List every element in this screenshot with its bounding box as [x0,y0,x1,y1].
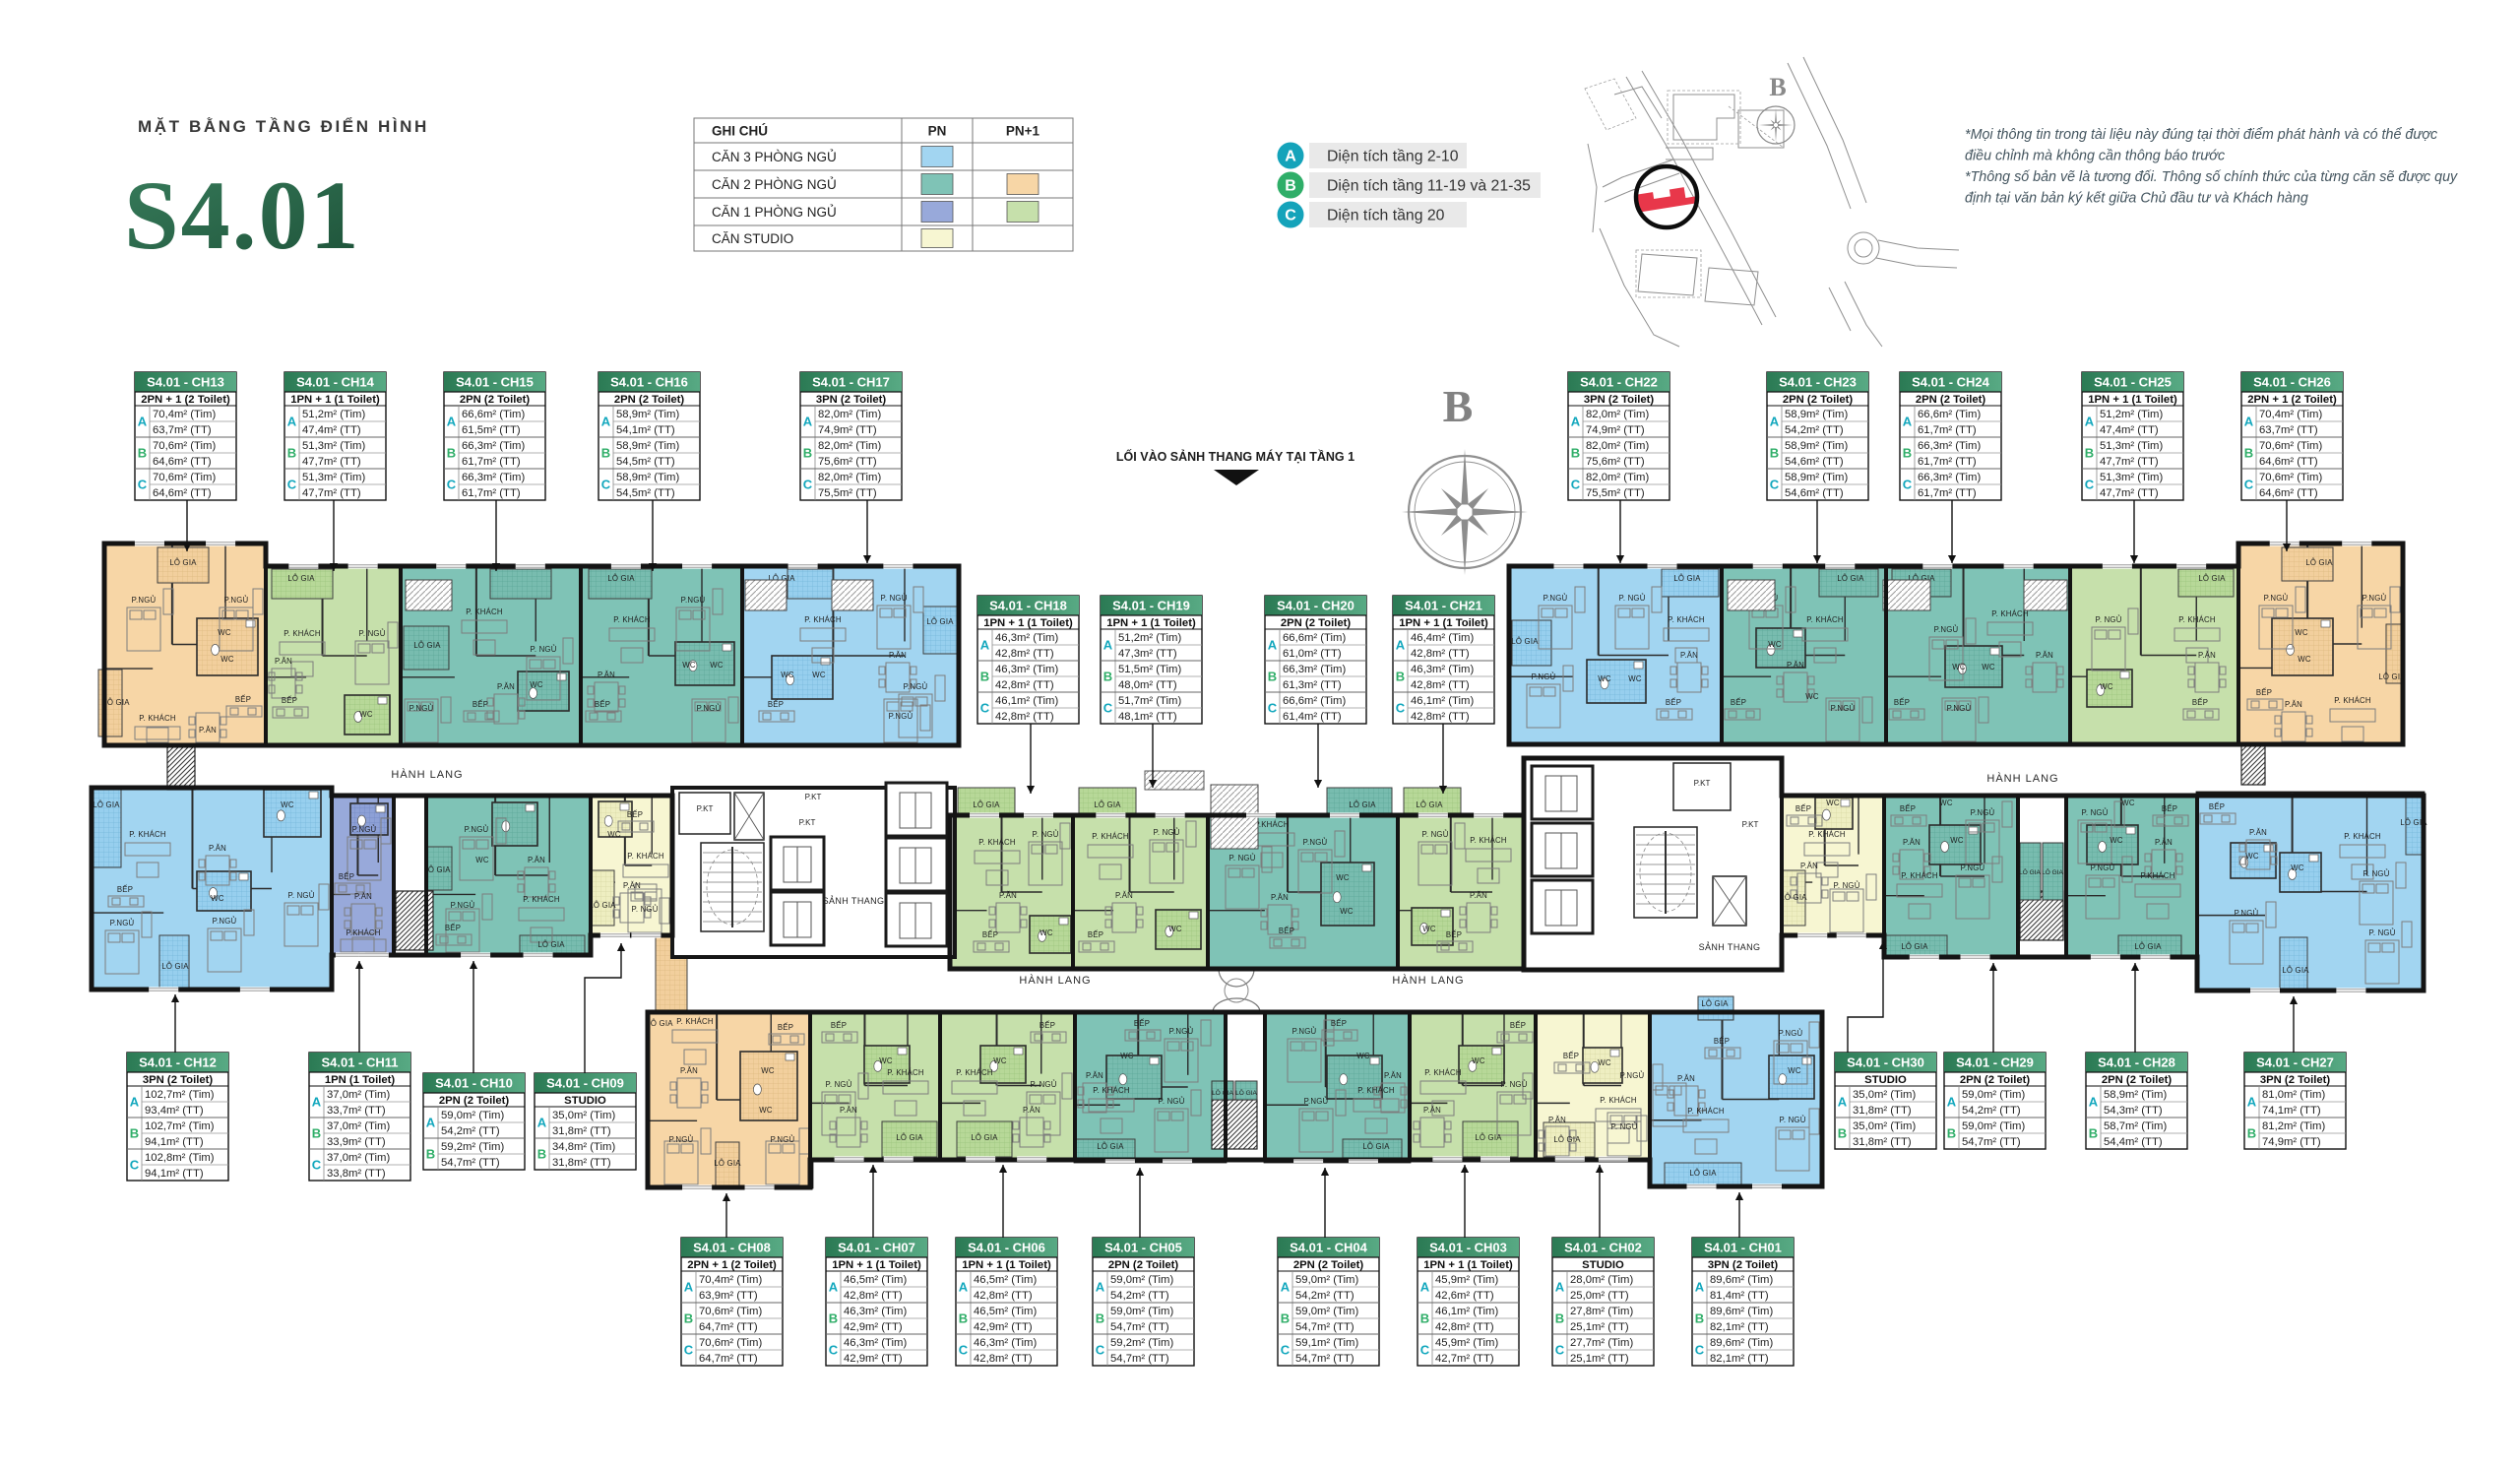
svg-text:A: A [959,1280,969,1295]
svg-text:70,6m² (Tim): 70,6m² (Tim) [2259,472,2322,483]
svg-text:WC: WC [781,671,794,679]
svg-text:BẾP: BẾP [1900,803,1916,813]
svg-text:WC: WC [218,628,231,637]
svg-text:47,7m² (TT): 47,7m² (TT) [302,487,361,499]
svg-text:P.ĂN: P.ĂN [1115,891,1133,900]
svg-text:42,8m² (TT): 42,8m² (TT) [974,1290,1033,1302]
svg-text:P.NGỦ: P.NGỦ [697,704,722,713]
svg-text:81,2m² (Tim): 81,2m² (Tim) [2262,1120,2325,1132]
svg-text:66,6m² (Tim): 66,6m² (Tim) [462,409,525,420]
svg-text:WC: WC [1336,873,1350,882]
svg-text:WC: WC [1168,925,1182,933]
svg-text:WC: WC [1039,928,1053,937]
svg-text:P. NGỦ: P. NGỦ [530,645,556,654]
svg-text:GHI CHÚ: GHI CHÚ [712,124,768,139]
svg-text:C: C [1103,701,1113,716]
svg-text:47,4m² (TT): 47,4m² (TT) [2100,424,2159,436]
svg-text:WC: WC [475,856,489,864]
svg-text:A: A [1770,415,1780,429]
svg-text:54,7m² (TT): 54,7m² (TT) [1110,1353,1169,1365]
svg-text:WC: WC [993,1056,1007,1065]
svg-text:*Mọi thông tin trong tài liệu: *Mọi thông tin trong tài liệu này đúng t… [1965,127,2437,143]
svg-text:31,8m² (TT): 31,8m² (TT) [1853,1136,1912,1148]
svg-text:B: B [426,1147,435,1162]
svg-text:46,3m² (Tim): 46,3m² (Tim) [844,1306,907,1317]
svg-text:C: C [1571,478,1581,492]
svg-text:B: B [2089,1126,2098,1141]
svg-text:C: C [959,1343,969,1358]
svg-text:2PN (2 Toilet): 2PN (2 Toilet) [460,394,531,406]
svg-text:P.ĂN: P.ĂN [1677,1074,1695,1083]
svg-text:WC: WC [1598,674,1611,683]
svg-text:42,8m² (TT): 42,8m² (TT) [974,1353,1033,1365]
svg-text:C: C [1770,478,1780,492]
svg-text:59,0m² (Tim): 59,0m² (Tim) [441,1110,504,1121]
svg-text:S4.01 - CH24: S4.01 - CH24 [1912,375,1990,390]
svg-text:70,4m² (Tim): 70,4m² (Tim) [153,409,216,420]
svg-text:P.ĂN: P.ĂN [2036,651,2053,660]
svg-text:63,7m² (TT): 63,7m² (TT) [153,424,212,436]
svg-text:70,6m² (Tim): 70,6m² (Tim) [153,440,216,452]
svg-text:51,3m² (Tim): 51,3m² (Tim) [2100,472,2163,483]
svg-text:42,8m² (TT): 42,8m² (TT) [995,711,1054,723]
svg-text:46,3m² (Tim): 46,3m² (Tim) [974,1337,1037,1349]
svg-text:P. KHÁCH: P. KHÁCH [804,615,841,624]
svg-text:P.NGỦ: P.NGỦ [1961,863,1985,872]
svg-text:B: B [1695,1311,1704,1326]
svg-text:P.ĂN: P.ĂN [209,844,226,853]
svg-text:A: A [980,638,990,653]
svg-text:P. KHÁCH: P. KHÁCH [283,629,320,638]
svg-text:2PN (2 Toilet): 2PN (2 Toilet) [1293,1259,1364,1271]
svg-text:LÔ GIA: LÔ GIA [896,1133,923,1142]
svg-text:C: C [829,1343,839,1358]
svg-text:59,0m² (Tim): 59,0m² (Tim) [1962,1089,2025,1101]
svg-text:C: C [1268,701,1278,716]
svg-text:WC: WC [1939,799,1953,807]
svg-text:A: A [829,1280,839,1295]
svg-text:2PN (2 Toilet): 2PN (2 Toilet) [1281,617,1352,629]
svg-text:BẾP: BẾP [339,871,354,881]
svg-text:2PN (2 Toilet): 2PN (2 Toilet) [1783,394,1854,406]
svg-text:B: B [312,1126,321,1141]
svg-text:BẾP: BẾP [1088,929,1103,939]
svg-text:P.KT: P.KT [1742,820,1759,829]
svg-text:C: C [980,701,990,716]
svg-text:LÔ GIA: LÔ GIA [2282,966,2309,975]
svg-text:54,7m² (TT): 54,7m² (TT) [441,1157,500,1169]
svg-text:P.NGỦ: P.NGỦ [669,1135,694,1144]
svg-text:A: A [1285,149,1296,165]
svg-text:28,0m² (Tim): 28,0m² (Tim) [1570,1274,1633,1286]
svg-text:STUDIO: STUDIO [564,1095,606,1107]
svg-text:P.NGỦ: P.NGỦ [1292,1027,1317,1036]
svg-text:70,6m² (Tim): 70,6m² (Tim) [153,472,216,483]
svg-text:P. KHÁCH: P. KHÁCH [129,830,165,839]
svg-text:P. KHÁCH: P. KHÁCH [676,1017,713,1026]
svg-text:54,2m² (TT): 54,2m² (TT) [1785,424,1844,436]
svg-text:định tại văn bản ký kết giữa C: định tại văn bản ký kết giữa Chủ đầu tư … [1965,191,2308,207]
svg-text:59,0m² (Tim): 59,0m² (Tim) [1110,1274,1173,1286]
svg-text:B: B [1268,670,1277,684]
svg-text:P.NGỦ: P.NGỦ [2264,594,2289,603]
svg-text:37,0m² (Tim): 37,0m² (Tim) [327,1152,390,1164]
svg-text:70,6m² (Tim): 70,6m² (Tim) [2259,440,2322,452]
svg-text:S4.01 - CH22: S4.01 - CH22 [1580,375,1658,390]
svg-text:61,3m² (TT): 61,3m² (TT) [1283,679,1342,691]
svg-text:LÔ GIA: LÔ GIA [1553,1135,1581,1144]
svg-text:25,1m² (TT): 25,1m² (TT) [1570,1353,1629,1365]
svg-text:LÔ GIA: LÔ GIA [93,800,120,809]
svg-text:S4.01 - CH30: S4.01 - CH30 [1847,1055,1924,1070]
svg-text:B: B [803,446,812,461]
svg-text:C: C [1420,1343,1430,1358]
svg-text:P.NGỦ: P.NGỦ [2091,863,2115,872]
svg-text:58,9m² (Tim): 58,9m² (Tim) [2104,1089,2167,1101]
svg-text:54,4m² (TT): 54,4m² (TT) [2104,1136,2163,1148]
svg-text:WC: WC [1950,836,1964,845]
svg-text:C: C [1903,478,1913,492]
svg-text:WC: WC [1598,1058,1611,1067]
svg-text:S4.01 - CH16: S4.01 - CH16 [610,375,688,390]
svg-text:SẢNH THANG: SẢNH THANG [823,895,885,906]
svg-text:CĂN 1 PHÒNG NGỦ: CĂN 1 PHÒNG NGỦ [712,205,837,220]
svg-text:P.ĂN: P.ĂN [1023,1106,1040,1115]
svg-text:BẾP: BẾP [982,929,998,939]
svg-text:B: B [980,670,989,684]
svg-text:P.NGỦ: P.NGỦ [352,825,377,834]
svg-text:51,3m² (Tim): 51,3m² (Tim) [302,440,365,452]
svg-text:A: A [1281,1280,1291,1295]
svg-text:BẾP: BẾP [1039,1020,1055,1030]
svg-text:P.NGỦ: P.NGỦ [2362,594,2387,603]
svg-text:61,5m² (TT): 61,5m² (TT) [462,424,521,436]
svg-text:C: C [2085,478,2095,492]
svg-text:P.ĂN: P.ĂN [275,657,292,666]
svg-text:*Thông số bản vẽ là tương đối.: *Thông số bản vẽ là tương đối. Thông số … [1965,169,2458,185]
svg-text:P.ĂN: P.ĂN [2198,651,2216,660]
svg-text:34,8m² (Tim): 34,8m² (Tim) [552,1141,615,1153]
svg-text:C: C [1096,1343,1105,1358]
svg-text:P. KHÁCH: P. KHÁCH [1470,836,1506,845]
svg-text:P.NGỦ: P.NGỦ [904,682,928,691]
svg-text:51,2m² (Tim): 51,2m² (Tim) [2100,409,2163,420]
svg-text:P. NGỦ: P. NGỦ [2081,808,2108,817]
svg-text:P.ĂN: P.ĂN [1423,1106,1441,1115]
svg-text:102,7m² (Tim): 102,7m² (Tim) [145,1089,215,1101]
svg-text:WC: WC [1768,640,1782,649]
svg-text:P. KHÁCH: P. KHÁCH [1687,1107,1724,1116]
svg-text:58,9m² (Tim): 58,9m² (Tim) [616,440,679,452]
svg-text:3PN (2 Toilet): 3PN (2 Toilet) [2260,1074,2331,1086]
svg-text:58,9m² (Tim): 58,9m² (Tim) [1785,440,1848,452]
svg-text:66,3m² (Tim): 66,3m² (Tim) [462,440,525,452]
svg-text:LÔ GIA: LÔ GIA [1235,1088,1257,1097]
svg-text:P.NGỦ: P.NGỦ [1543,594,1568,603]
svg-text:27,8m² (Tim): 27,8m² (Tim) [1570,1306,1633,1317]
svg-text:B: B [601,446,610,461]
svg-text:P.NGỦ: P.NGỦ [1620,1071,1645,1080]
svg-text:58,9m² (Tim): 58,9m² (Tim) [1785,472,1848,483]
svg-text:46,1m² (Tim): 46,1m² (Tim) [995,695,1058,707]
svg-text:BẾP: BẾP [235,694,251,704]
svg-text:75,5m² (TT): 75,5m² (TT) [1586,487,1645,499]
svg-text:1PN + 1 (1 Toilet): 1PN + 1 (1 Toilet) [962,1259,1051,1271]
svg-text:BẾP: BẾP [117,884,133,894]
svg-text:S4.01 - CH07: S4.01 - CH07 [838,1241,915,1255]
svg-text:P.NGỦ: P.NGỦ [110,919,135,927]
svg-text:31,8m² (TT): 31,8m² (TT) [552,1125,611,1137]
svg-text:LÔ GIA: LÔ GIA [589,901,616,910]
svg-text:P.ĂN: P.ĂN [1470,891,1487,900]
svg-text:HÀNH LANG: HÀNH LANG [1392,974,1464,987]
svg-text:1PN + 1 (1 Toilet): 1PN + 1 (1 Toilet) [290,394,380,406]
svg-text:66,3m² (Tim): 66,3m² (Tim) [1918,440,1981,452]
svg-text:64,6m² (TT): 64,6m² (TT) [2259,487,2318,499]
svg-text:46,3m² (Tim): 46,3m² (Tim) [1411,664,1474,675]
svg-text:46,4m² (Tim): 46,4m² (Tim) [1411,632,1474,644]
svg-text:3PN (2 Toilet): 3PN (2 Toilet) [816,394,887,406]
svg-text:LÔ GIA: LÔ GIA [1475,1133,1502,1142]
svg-text:82,0m² (Tim): 82,0m² (Tim) [818,409,881,420]
svg-text:61,7m² (TT): 61,7m² (TT) [462,456,521,468]
svg-text:P.NGỦ: P.NGỦ [132,596,157,605]
svg-text:P. KHÁCH: P. KHÁCH [1991,609,2028,618]
svg-text:P.NGỦ: P.NGỦ [1947,704,1972,713]
svg-text:P. KHÁCH: P. KHÁCH [978,838,1015,847]
svg-text:S4.01 - CH01: S4.01 - CH01 [1704,1241,1782,1255]
svg-text:S4.01 - CH13: S4.01 - CH13 [147,375,224,390]
svg-text:S4.01 - CH03: S4.01 - CH03 [1429,1241,1507,1255]
svg-text:WC: WC [1805,692,1819,701]
svg-text:LÔ GIA: LÔ GIA [102,698,130,707]
svg-text:47,7m² (TT): 47,7m² (TT) [2100,456,2159,468]
svg-text:33,8m² (TT): 33,8m² (TT) [327,1168,386,1180]
svg-text:54,7m² (TT): 54,7m² (TT) [1295,1353,1354,1365]
svg-text:A: A [447,415,457,429]
svg-text:P. NGỦ: P. NGỦ [2095,615,2121,624]
svg-text:P.KT: P.KT [1694,779,1711,788]
svg-text:3PN (2 Toilet): 3PN (2 Toilet) [143,1074,214,1086]
svg-text:WC: WC [607,830,621,839]
svg-text:P.NGỦ: P.NGỦ [771,1135,795,1144]
svg-text:74,9m² (TT): 74,9m² (TT) [1586,424,1645,436]
svg-text:27,7m² (Tim): 27,7m² (Tim) [1570,1337,1633,1349]
svg-text:59,1m² (Tim): 59,1m² (Tim) [1295,1337,1358,1349]
svg-text:C: C [312,1158,322,1173]
svg-text:B: B [1769,73,1786,101]
svg-text:C: C [684,1343,694,1358]
svg-text:46,1m² (Tim): 46,1m² (Tim) [1435,1306,1498,1317]
svg-text:A: A [138,415,148,429]
svg-text:47,7m² (TT): 47,7m² (TT) [302,456,361,468]
svg-text:BẾP: BẾP [1446,929,1462,939]
svg-text:P.ĂN: P.ĂN [354,892,372,901]
svg-text:P. KHÁCH: P. KHÁCH [1901,871,1937,880]
svg-text:C: C [447,478,457,492]
svg-text:70,6m² (Tim): 70,6m² (Tim) [699,1337,762,1349]
svg-text:LÔ GIA: LÔ GIA [607,574,635,583]
svg-text:75,6m² (TT): 75,6m² (TT) [818,456,877,468]
svg-text:P.NGỦ: P.NGỦ [1779,1029,1803,1038]
svg-text:B: B [1571,446,1580,461]
svg-text:P. KHÁCH: P. KHÁCH [523,895,559,904]
svg-text:S4.01 - CH08: S4.01 - CH08 [693,1241,771,1255]
svg-text:LÔ GIA: LÔ GIA [287,574,315,583]
svg-text:WC: WC [530,680,543,689]
svg-text:42,8m² (TT): 42,8m² (TT) [1411,679,1470,691]
svg-text:P. NGỦ: P. NGỦ [287,891,314,900]
svg-text:P.ĂN: P.ĂN [1680,651,1698,660]
svg-text:LÔ GIA: LÔ GIA [1701,999,1729,1008]
svg-text:P. NGỦ: P. NGỦ [1833,881,1859,890]
svg-text:35,0m² (Tim): 35,0m² (Tim) [1853,1089,1916,1101]
svg-text:1PN + 1 (1 Toilet): 1PN + 1 (1 Toilet) [983,617,1073,629]
svg-text:B: B [2085,446,2094,461]
svg-text:BẾP: BẾP [2209,801,2225,811]
svg-text:2PN (2 Toilet): 2PN (2 Toilet) [1960,1074,2031,1086]
svg-text:47,3m² (TT): 47,3m² (TT) [1118,648,1177,660]
svg-text:P.ĂN: P.ĂN [680,1066,698,1075]
svg-text:LỐI VÀO SẢNH THANG MÁY TẠI TẦN: LỐI VÀO SẢNH THANG MÁY TẠI TẦNG 1 [1116,449,1354,464]
svg-text:S4.01 - CH21: S4.01 - CH21 [1405,599,1482,613]
svg-text:59,0m² (Tim): 59,0m² (Tim) [1962,1120,2025,1132]
svg-text:P. KHÁCH: P. KHÁCH [139,714,175,723]
svg-text:82,0m² (Tim): 82,0m² (Tim) [1586,440,1649,452]
svg-text:WC: WC [710,661,724,670]
svg-text:66,6m² (Tim): 66,6m² (Tim) [1918,409,1981,420]
svg-text:64,7m² (TT): 64,7m² (TT) [699,1321,758,1333]
svg-text:WC: WC [761,1066,775,1075]
svg-text:58,9m² (Tim): 58,9m² (Tim) [616,472,679,483]
svg-text:A: A [287,415,297,429]
svg-text:C: C [803,478,813,492]
svg-text:S4.01 - CH17: S4.01 - CH17 [812,375,890,390]
svg-text:70,4m² (Tim): 70,4m² (Tim) [699,1274,762,1286]
svg-text:P.ĂN: P.ĂN [1787,661,1804,670]
svg-text:C: C [1555,1343,1565,1358]
svg-text:WC: WC [220,655,234,664]
svg-text:LÔ GIA: LÔ GIA [1416,800,1443,809]
svg-text:A: A [803,415,813,429]
svg-text:BẾP: BẾP [1331,1018,1347,1028]
svg-text:S4.01 - CH09: S4.01 - CH09 [546,1076,624,1091]
svg-text:Diện tích tầng 20: Diện tích tầng 20 [1327,208,1445,224]
svg-text:P.NGỦ: P.NGỦ [1934,625,1959,634]
svg-text:S4.01 - CH20: S4.01 - CH20 [1277,599,1354,613]
svg-text:59,2m² (Tim): 59,2m² (Tim) [1110,1337,1173,1349]
svg-text:59,0m² (Tim): 59,0m² (Tim) [1295,1274,1358,1286]
svg-text:46,3m² (Tim): 46,3m² (Tim) [995,632,1058,644]
svg-text:B: B [684,1311,693,1326]
svg-text:2PN (2 Toilet): 2PN (2 Toilet) [614,394,685,406]
svg-text:P.NGỦ: P.NGỦ [1831,704,1856,713]
svg-text:PN: PN [928,124,947,139]
svg-text:HÀNH LANG: HÀNH LANG [1019,974,1091,987]
svg-text:A: A [2085,415,2095,429]
svg-text:51,3m² (Tim): 51,3m² (Tim) [2100,440,2163,452]
svg-text:P. NGỦ: P. NGỦ [1158,1097,1184,1106]
svg-text:S4.01 - CH12: S4.01 - CH12 [139,1055,217,1070]
svg-text:A: A [1555,1280,1565,1295]
svg-text:35,0m² (Tim): 35,0m² (Tim) [1853,1120,1916,1132]
svg-text:42,8m² (TT): 42,8m² (TT) [1411,711,1470,723]
svg-text:A: A [1695,1280,1705,1295]
svg-text:C: C [287,478,297,492]
svg-text:63,7m² (TT): 63,7m² (TT) [2259,424,2318,436]
svg-text:48,0m² (TT): 48,0m² (TT) [1118,679,1177,691]
svg-text:P.KT: P.KT [697,804,714,813]
svg-text:BẾP: BẾP [1894,697,1910,707]
svg-text:1PN + 1 (1 Toilet): 1PN + 1 (1 Toilet) [1399,617,1488,629]
svg-text:54,7m² (TT): 54,7m² (TT) [1295,1321,1354,1333]
svg-text:B: B [1096,1311,1104,1326]
svg-text:P. NGỦ: P. NGỦ [1779,1116,1805,1124]
svg-text:LÔ GIA: LÔ GIA [1780,893,1807,902]
svg-text:25,0m² (TT): 25,0m² (TT) [1570,1290,1629,1302]
svg-text:BẾP: BẾP [282,695,297,705]
svg-text:P.KHÁCH: P.KHÁCH [1254,820,1289,829]
svg-text:P.NGỦ: P.NGỦ [1303,838,1328,847]
svg-text:75,6m² (TT): 75,6m² (TT) [1586,456,1645,468]
svg-text:P. NGỦ: P. NGỦ [1032,830,1058,839]
svg-text:BẾP: BẾP [1714,1036,1730,1046]
svg-text:A: A [2089,1095,2099,1110]
svg-text:PN+1: PN+1 [1006,124,1040,139]
svg-text:B: B [1903,446,1912,461]
svg-text:P. NGỦ: P. NGỦ [2368,928,2395,937]
svg-text:P. NGỦ: P. NGỦ [1618,594,1645,603]
svg-text:LÔ GIA: LÔ GIA [161,962,189,971]
svg-text:66,3m² (Tim): 66,3m² (Tim) [1918,472,1981,483]
svg-text:S4.01 - CH04: S4.01 - CH04 [1290,1241,1368,1255]
svg-text:P. KHÁCH: P. KHÁCH [1092,832,1128,841]
svg-text:LÔ GIA: LÔ GIA [2042,867,2063,876]
svg-text:82,0m² (Tim): 82,0m² (Tim) [818,440,881,452]
svg-text:54,2m² (TT): 54,2m² (TT) [441,1125,500,1137]
svg-text:P.ĂN: P.ĂN [1903,838,1921,847]
svg-text:P. KHÁCH: P. KHÁCH [1808,830,1845,839]
svg-text:48,1m² (TT): 48,1m² (TT) [1118,711,1177,723]
svg-text:LÔ GIA: LÔ GIA [1837,574,1864,583]
svg-text:CĂN STUDIO: CĂN STUDIO [712,231,793,246]
svg-text:WC: WC [211,894,224,903]
svg-text:BẾP: BẾP [2256,687,2272,697]
svg-text:P.NGỦ: P.NGỦ [1971,808,1995,817]
svg-text:66,3m² (Tim): 66,3m² (Tim) [1283,664,1346,675]
svg-text:P.NGỦ: P.NGỦ [681,596,706,605]
svg-text:54,7m² (TT): 54,7m² (TT) [1962,1136,2021,1148]
svg-text:LÔ GIA: LÔ GIA [2134,942,2162,951]
svg-text:LÔ GIA: LÔ GIA [1689,1169,1717,1178]
svg-text:B: B [1838,1126,1847,1141]
svg-text:64,6m² (TT): 64,6m² (TT) [153,487,212,499]
svg-text:P. KHÁCH: P. KHÁCH [466,607,502,616]
svg-text:LÔ GIA: LÔ GIA [1212,1088,1233,1097]
svg-text:94,1m² (TT): 94,1m² (TT) [145,1168,204,1180]
svg-text:45,9m² (Tim): 45,9m² (Tim) [1435,1274,1498,1286]
svg-text:A: A [684,1280,694,1295]
svg-text:WC: WC [2100,682,2113,691]
svg-text:33,7m² (TT): 33,7m² (TT) [327,1105,386,1117]
svg-text:2PN (2 Toilet): 2PN (2 Toilet) [2102,1074,2173,1086]
svg-text:P.KHÁCH: P.KHÁCH [2140,871,2174,880]
svg-text:46,5m² (Tim): 46,5m² (Tim) [974,1274,1037,1286]
svg-text:B: B [447,446,456,461]
svg-text:82,0m² (Tim): 82,0m² (Tim) [818,472,881,483]
svg-text:61,4m² (TT): 61,4m² (TT) [1283,711,1342,723]
svg-text:BẾP: BẾP [1563,1051,1579,1060]
